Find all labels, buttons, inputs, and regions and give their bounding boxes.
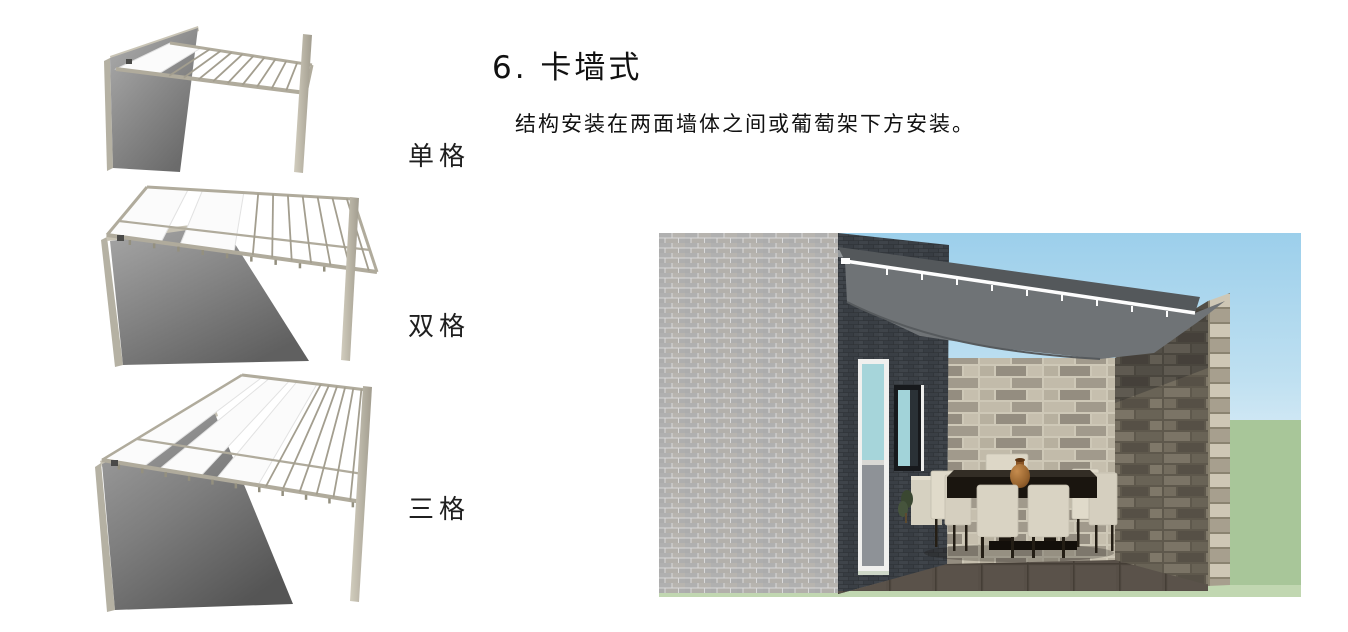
- single-grid-structure-illustration: [100, 25, 375, 173]
- triple-grid-structure-illustration: [45, 372, 398, 612]
- double-grid-label: 双格: [408, 306, 470, 343]
- building-front-wall: [659, 233, 838, 593]
- window: [894, 385, 924, 471]
- section-description: 结构安装在两面墙体之间或葡萄架下方安装。: [515, 108, 975, 138]
- grass-right: [1225, 420, 1301, 597]
- section-title: 6. 卡墙式: [492, 42, 642, 87]
- wall-bracket: [117, 235, 124, 241]
- fabric-panel: [180, 190, 244, 252]
- patio-render-figure: [659, 233, 1301, 601]
- entry-door: [858, 359, 889, 575]
- figure-single-grid: [100, 25, 375, 173]
- double-grid-structure-illustration: [63, 183, 393, 368]
- right-post: [294, 34, 312, 173]
- manual-page: 单格: [0, 0, 1348, 632]
- right-post: [350, 386, 372, 602]
- wall-bracket: [111, 460, 118, 466]
- triple-grid-label: 三格: [408, 489, 470, 526]
- single-grid-label: 单格: [408, 136, 470, 173]
- wall-bracket: [126, 59, 132, 64]
- patio-installation-illustration: [659, 233, 1301, 597]
- figure-double-grid: [63, 183, 393, 368]
- figure-triple-grid: [45, 372, 398, 612]
- right-post: [341, 197, 359, 361]
